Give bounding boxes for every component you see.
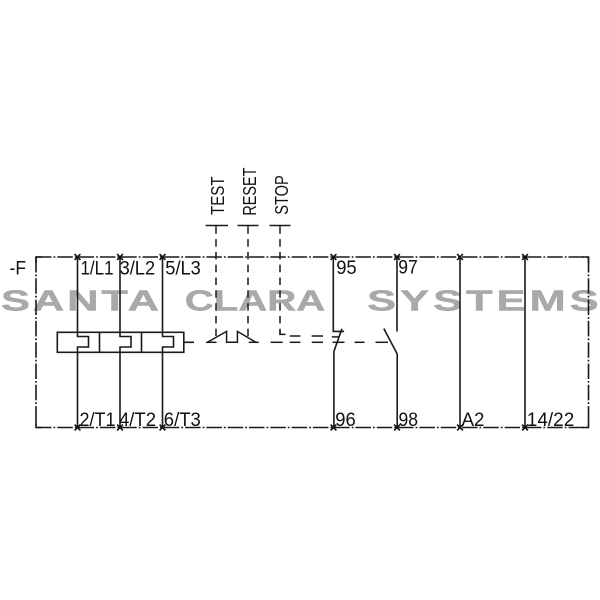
svg-text:96: 96 (335, 409, 356, 431)
svg-text:A2: A2 (462, 409, 485, 431)
svg-text:14/22: 14/22 (527, 409, 575, 431)
svg-text:5/L3: 5/L3 (165, 258, 201, 280)
svg-text:95: 95 (336, 257, 357, 279)
svg-text:1/L1: 1/L1 (81, 258, 114, 280)
svg-text:-F: -F (10, 257, 27, 279)
svg-text:4/T2: 4/T2 (119, 409, 156, 431)
svg-text:RESET: RESET (240, 168, 260, 216)
svg-text:SYSTEMS: SYSTEMS (367, 285, 598, 317)
svg-text:97: 97 (398, 257, 418, 279)
svg-text:STOP: STOP (272, 175, 292, 215)
svg-text:2/T1: 2/T1 (80, 409, 116, 431)
svg-text:SANTA: SANTA (1, 285, 159, 317)
svg-text:6/T3: 6/T3 (164, 409, 201, 431)
svg-text:98: 98 (399, 409, 419, 431)
svg-text:TEST: TEST (208, 177, 228, 216)
svg-text:3/L2: 3/L2 (120, 258, 156, 280)
svg-text:CLARA: CLARA (185, 285, 326, 317)
